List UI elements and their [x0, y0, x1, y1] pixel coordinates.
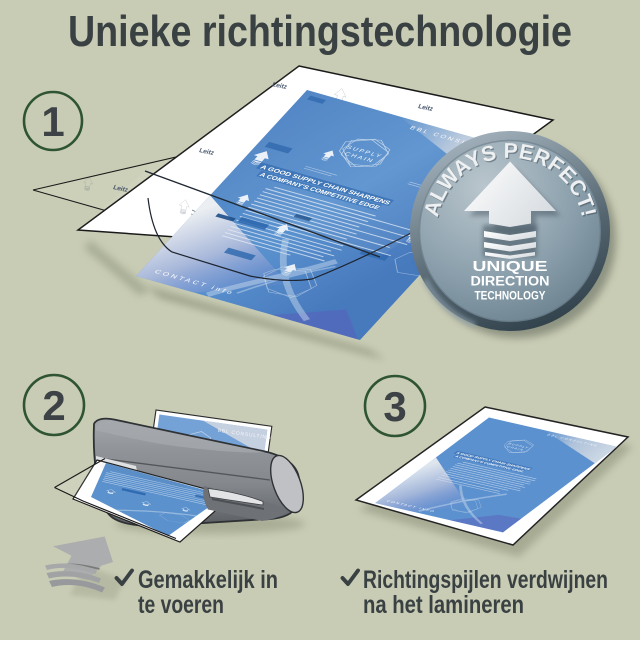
svg-text:na het lamineren: na het lamineren: [363, 591, 524, 619]
svg-text:DIRECTION: DIRECTION: [471, 274, 550, 289]
svg-text:Richtingspijlen verdwijnen: Richtingspijlen verdwijnen: [363, 566, 608, 594]
svg-text:1: 1: [41, 98, 64, 145]
svg-text:3: 3: [383, 383, 406, 430]
svg-text:2: 2: [42, 382, 65, 429]
svg-text:UNIQUE: UNIQUE: [473, 258, 548, 275]
svg-text:Gemakkelijk in: Gemakkelijk in: [138, 566, 278, 594]
svg-text:Unieke richtingstechnologie: Unieke richtingstechnologie: [68, 7, 572, 56]
svg-text:TECHNOLOGY: TECHNOLOGY: [475, 291, 546, 303]
svg-text:te voeren: te voeren: [138, 591, 224, 619]
